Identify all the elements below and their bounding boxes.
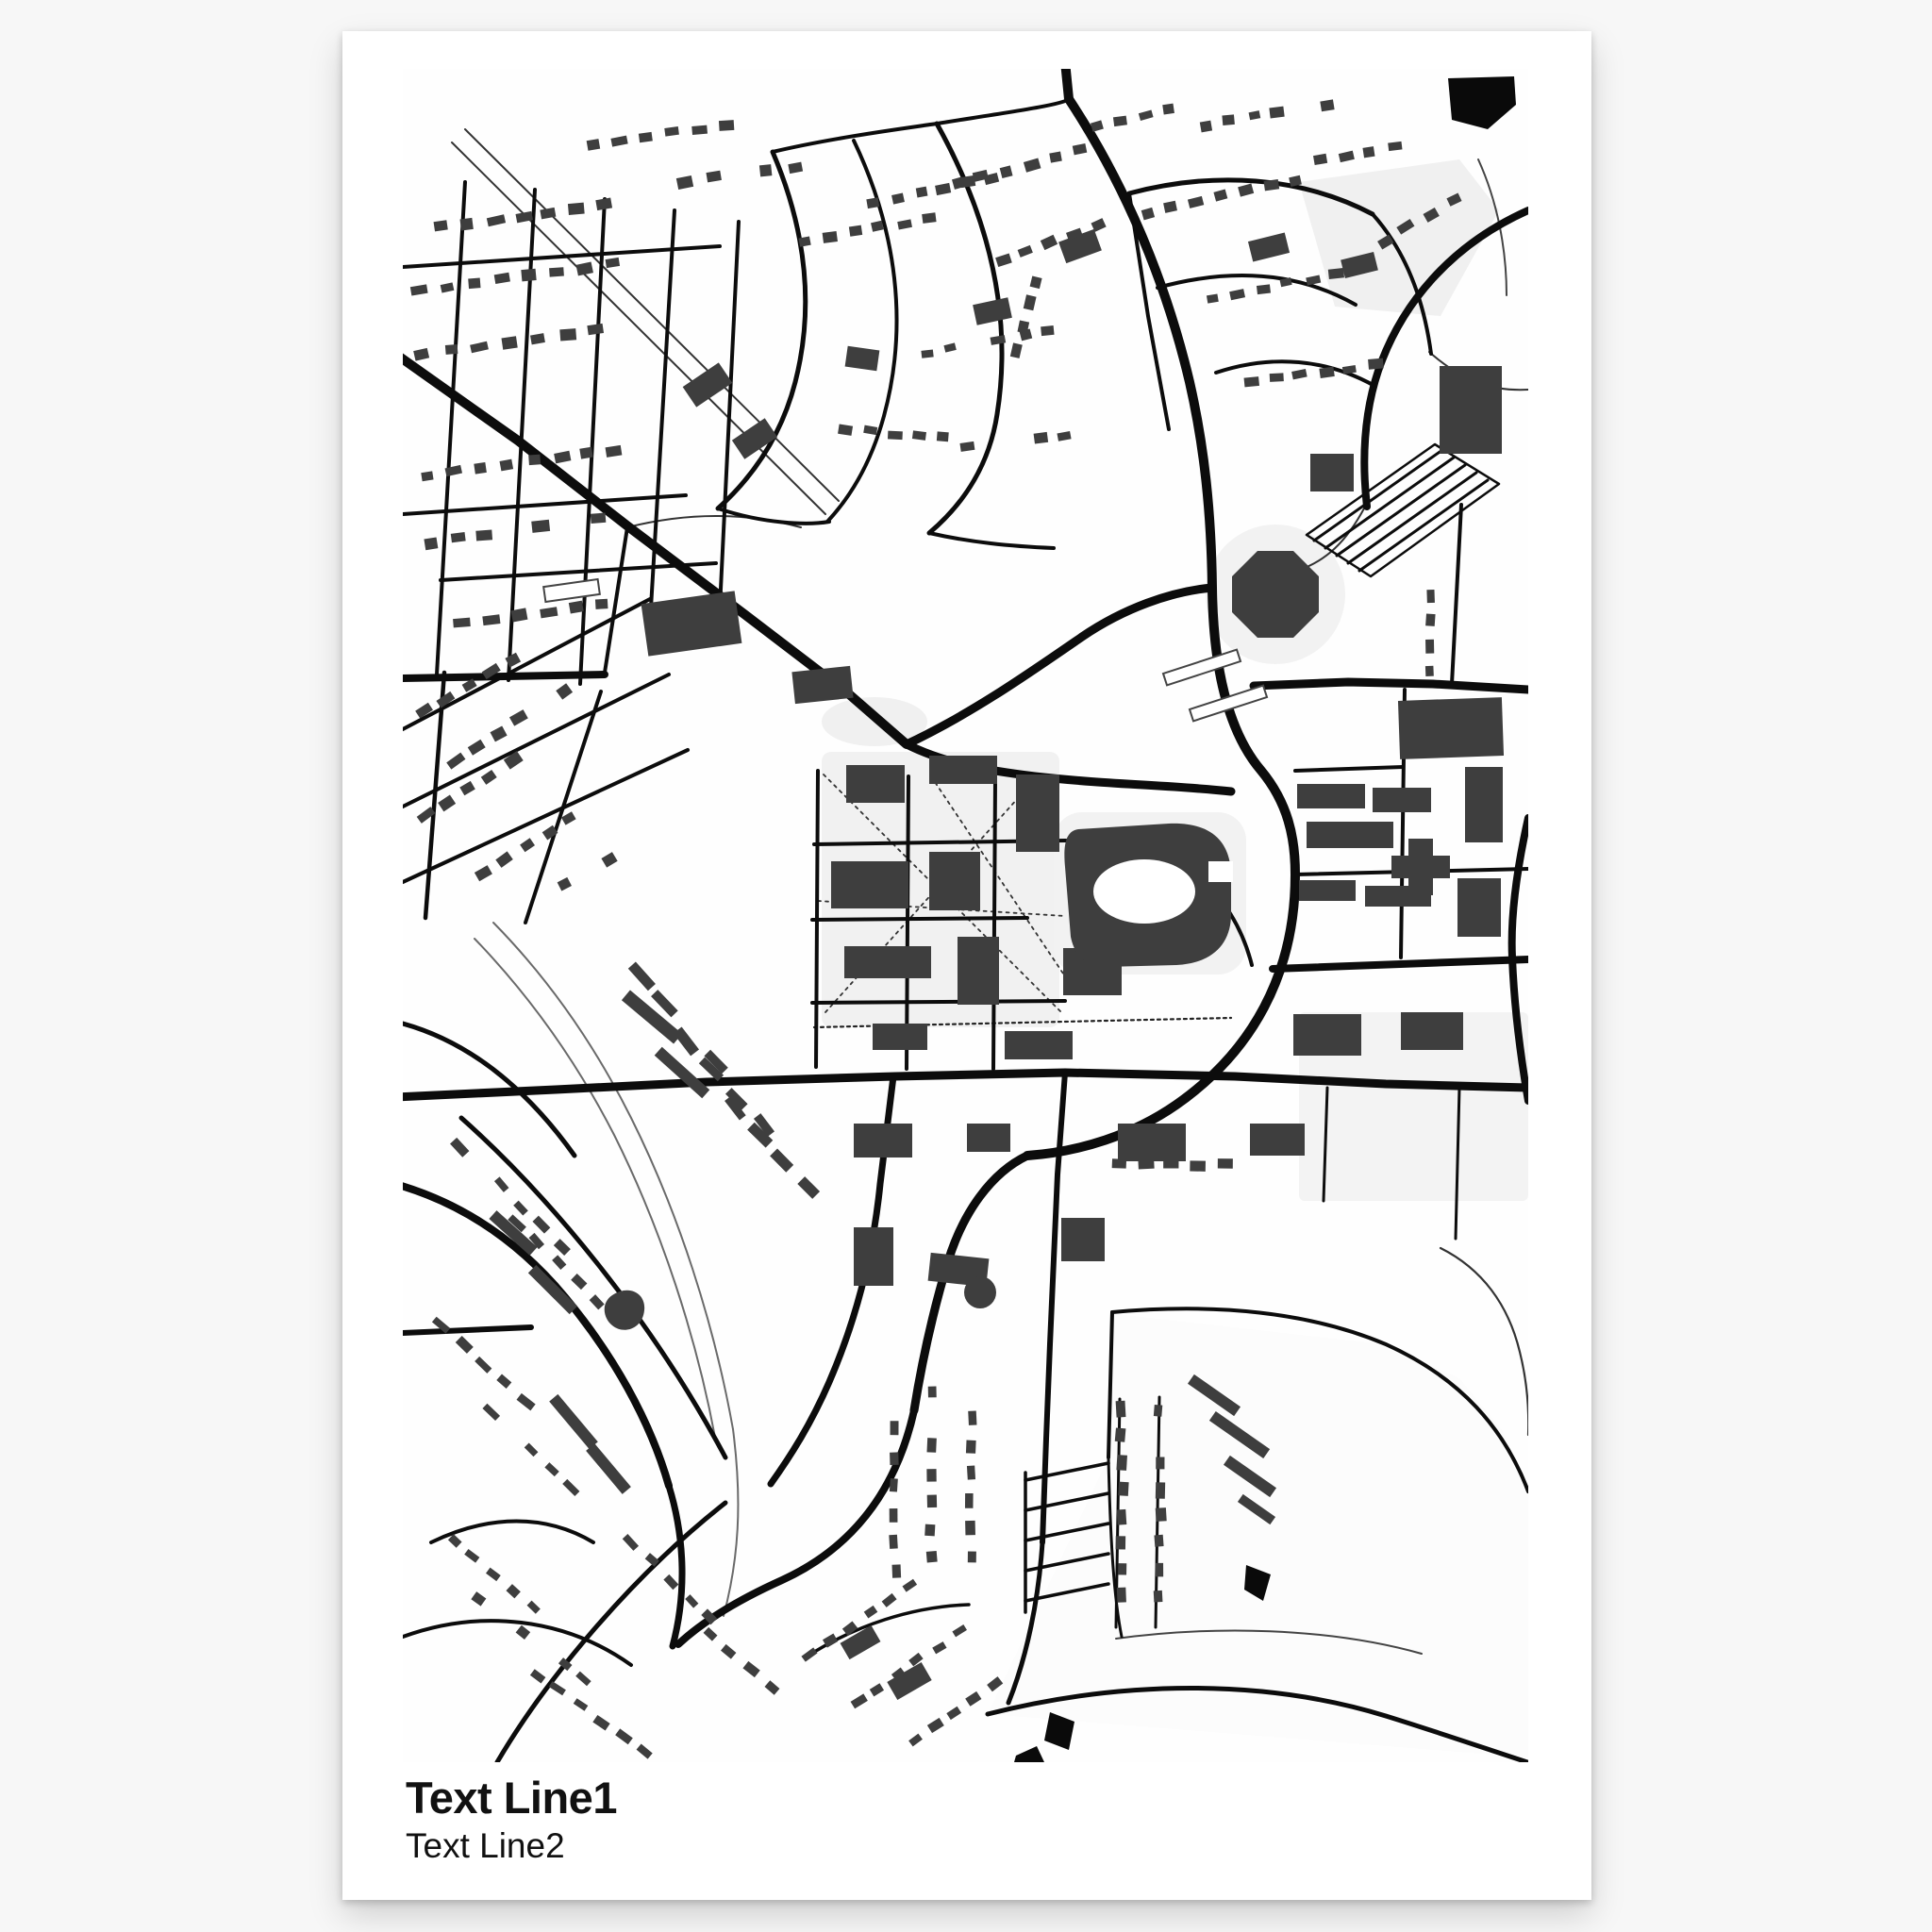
poster-caption: Text Line1 Text Line2 (406, 1773, 1443, 1867)
page-background: { "page": { "background": "#f7f7f7" }, "… (0, 0, 1932, 1932)
caption-line1: Text Line1 (406, 1773, 1443, 1824)
caption-line2: Text Line2 (406, 1825, 1443, 1867)
map-poster: Text Line1 Text Line2 (342, 31, 1591, 1900)
city-map (403, 69, 1528, 1762)
city-map-svg (403, 69, 1528, 1762)
